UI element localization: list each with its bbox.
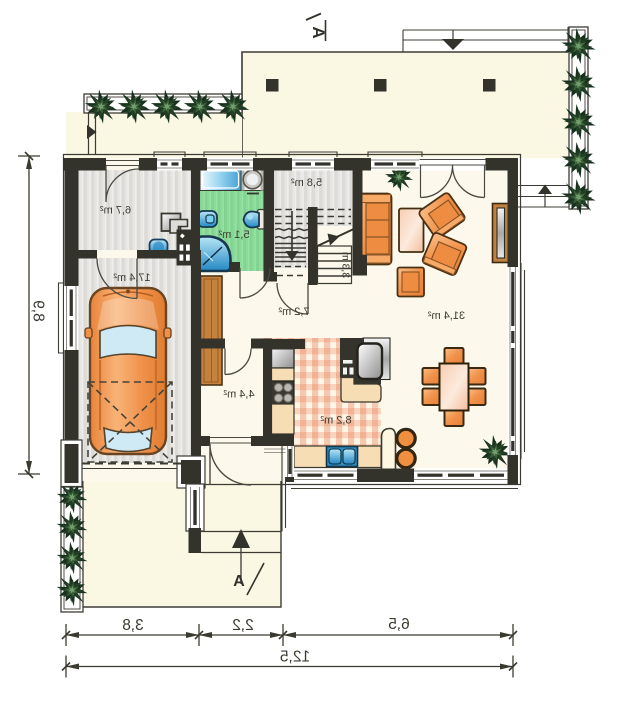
svg-text:6,7 m²: 6,7 m² — [100, 205, 132, 217]
svg-text:31,4 m²: 31,4 m² — [428, 310, 466, 322]
svg-text:4,4 m²: 4,4 m² — [223, 389, 255, 401]
svg-text:6,5: 6,5 — [388, 616, 410, 633]
svg-text:8,2 m²: 8,2 m² — [320, 415, 352, 427]
svg-text:3,3 m: 3,3 m — [340, 252, 352, 279]
svg-text:5,1 m²: 5,1 m² — [218, 229, 250, 241]
svg-text:A: A — [309, 26, 328, 38]
svg-text:A: A — [233, 573, 245, 590]
svg-text:8,9: 8,9 — [30, 300, 47, 322]
svg-text:12,5: 12,5 — [280, 649, 310, 666]
svg-text:7,2 m²: 7,2 m² — [278, 306, 310, 318]
svg-text:17,4 m²: 17,4 m² — [113, 272, 151, 284]
svg-text:2,2: 2,2 — [232, 617, 254, 634]
svg-text:3,8: 3,8 — [122, 617, 144, 634]
svg-text:5,8 m²: 5,8 m² — [291, 177, 323, 189]
